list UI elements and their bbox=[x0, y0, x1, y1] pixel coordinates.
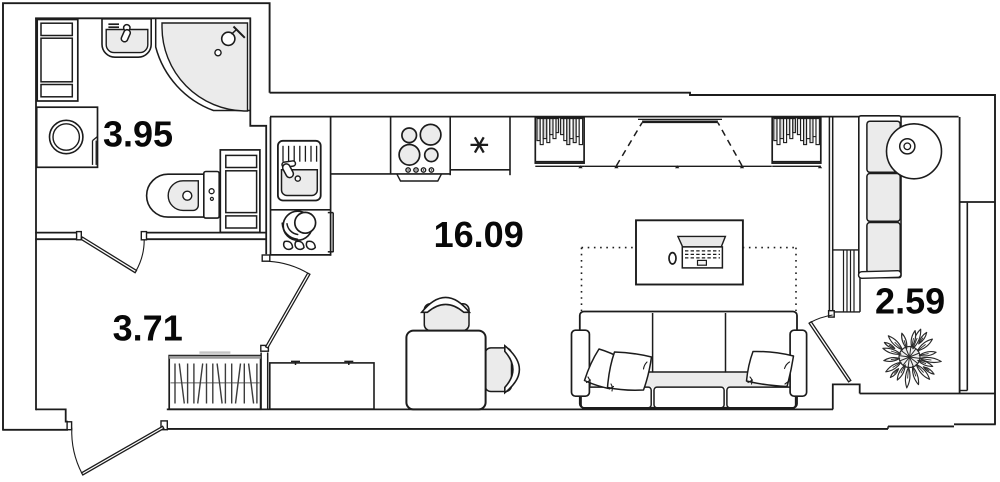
svg-text:3.95: 3.95 bbox=[103, 113, 173, 154]
svg-text:2.59: 2.59 bbox=[875, 280, 945, 321]
svg-text:16.09: 16.09 bbox=[434, 214, 524, 255]
svg-text:3.71: 3.71 bbox=[113, 308, 183, 349]
